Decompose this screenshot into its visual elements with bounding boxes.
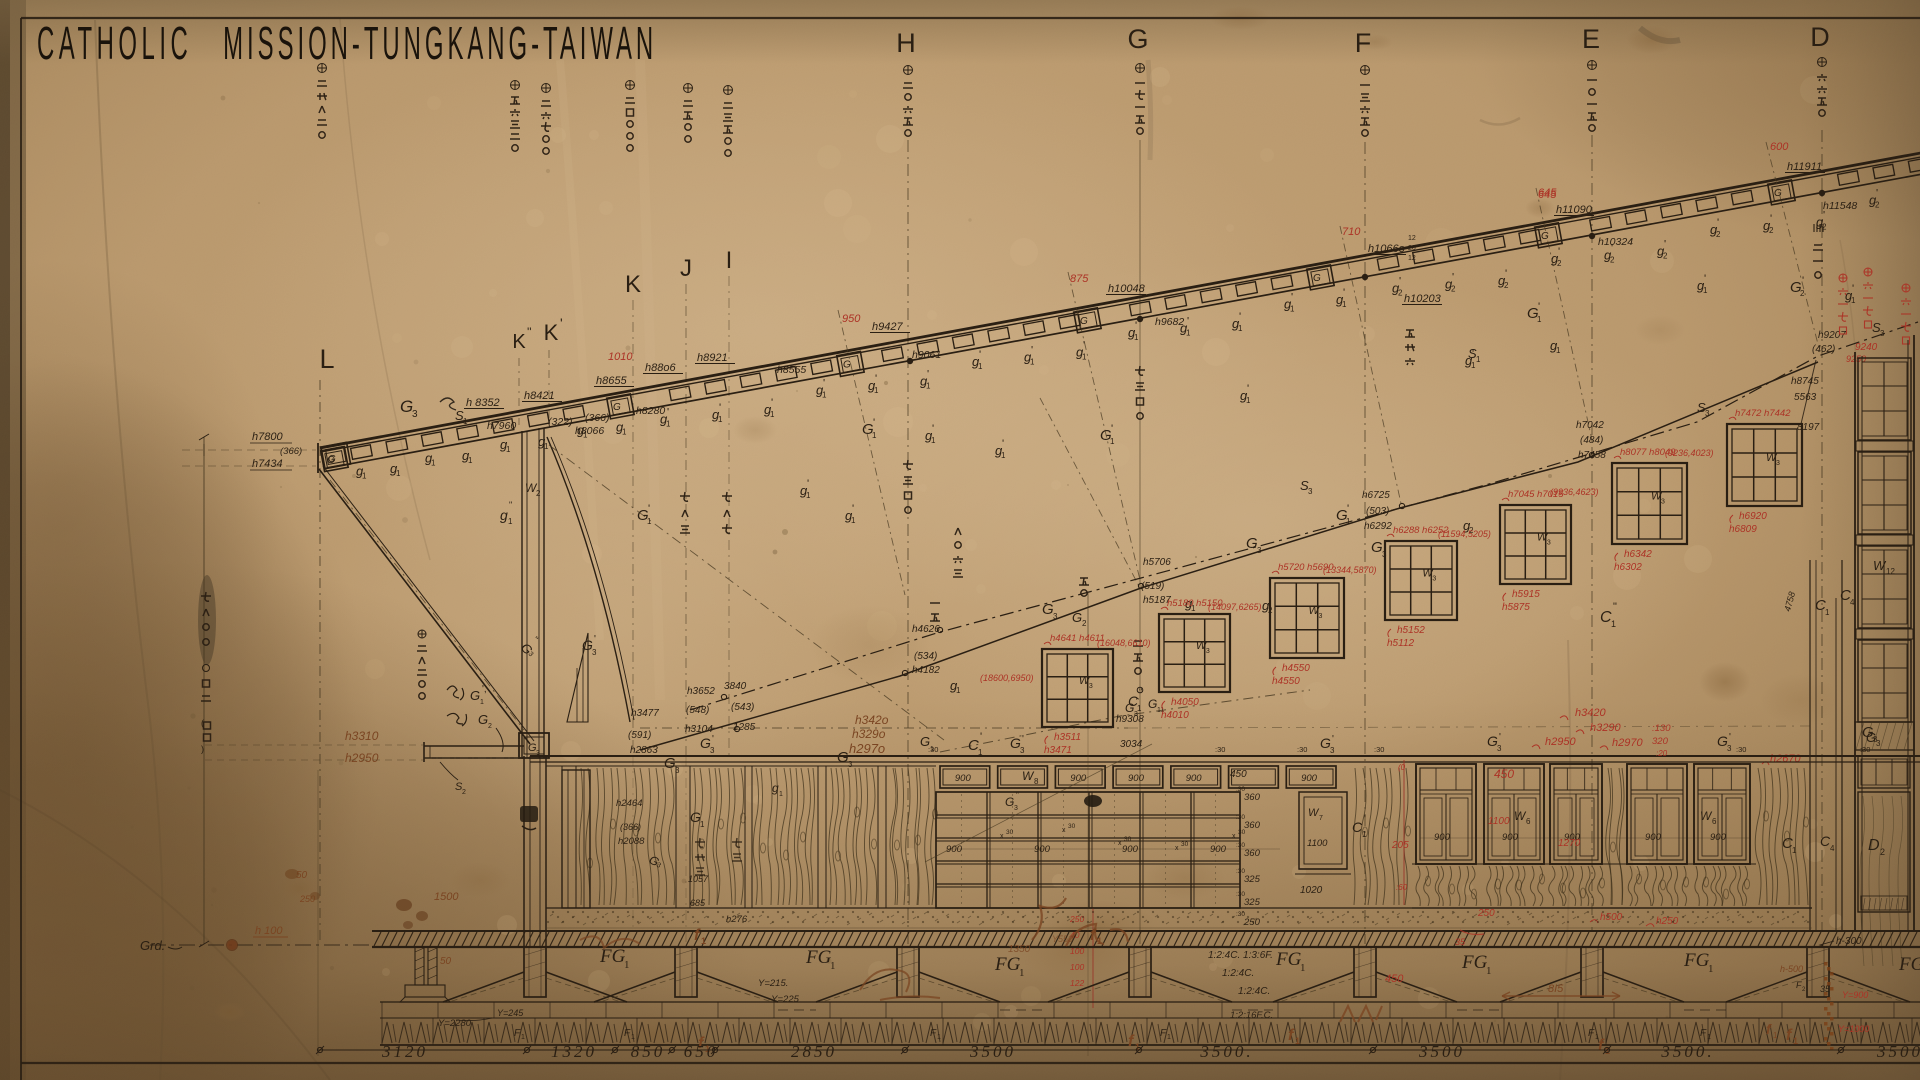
svg-text:W: W [1873,558,1887,573]
svg-text:1: 1 [647,517,652,526]
svg-text:4: 4 [1830,844,1835,853]
svg-text:30: 30 [1068,823,1076,830]
svg-text:250: 250 [1477,908,1495,919]
svg-text:685: 685 [690,898,706,908]
svg-text:G: G [470,688,480,703]
svg-text:3: 3 [710,746,715,755]
svg-text:1: 1 [1342,300,1347,309]
svg-text:': ' [979,349,981,361]
svg-text:': ' [1031,344,1033,356]
svg-text:F: F [1700,1028,1707,1039]
svg-text:D: D [1810,22,1830,52]
svg-text:1: 1 [872,431,877,440]
svg-text:2: 2 [536,489,541,498]
svg-text:710: 710 [1342,226,1361,238]
svg-text:g: g [500,507,508,523]
svg-text:900: 900 [1034,844,1051,855]
svg-text:450: 450 [1230,769,1247,780]
svg-text:3: 3 [1257,546,1262,555]
svg-text:1: 1 [468,456,473,465]
svg-text:G: G [843,360,851,371]
svg-text:1: 1 [1137,704,1142,713]
svg-text:1: 1 [1167,1034,1171,1041]
svg-text:h11090: h11090 [1556,204,1593,216]
svg-text:3: 3 [592,648,597,657]
svg-text:': ' [1364,814,1366,825]
svg-text:1:2:4C.: 1:2:4C. [1238,986,1270,997]
svg-text:G: G [1541,231,1549,242]
svg-text:': ' [1505,268,1507,280]
svg-text:h9308: h9308 [1116,714,1144,725]
svg-text:3: 3 [1089,683,1093,690]
svg-text:': ' [1729,732,1731,743]
svg-text:h10048: h10048 [1108,283,1146,295]
svg-text:G: G [1080,316,1088,327]
svg-text:h6809: h6809 [1729,524,1757,535]
svg-text:1: 1 [956,686,961,695]
svg-text:h4010: h4010 [1161,710,1189,721]
svg-text:325: 325 [1244,874,1261,885]
svg-text:3: 3 [1705,409,1710,418]
svg-text:1: 1 [1851,296,1856,305]
svg-text:(322): (322) [548,416,573,428]
svg-text:1: 1 [1792,846,1797,855]
svg-text:1: 1 [937,1034,941,1041]
svg-text:600: 600 [1770,141,1789,153]
svg-text:3034: 3034 [1120,739,1143,750]
svg-text:': ' [648,503,650,515]
svg-text:12: 12 [1408,255,1416,262]
svg-text:1: 1 [1300,962,1306,974]
svg-text:Y=1000: Y=1000 [1838,1024,1869,1034]
svg-text:': ' [1852,283,1854,295]
svg-text:': ' [719,402,721,414]
svg-text:': ' [1135,320,1137,332]
svg-text:3500: 3500 [1418,1042,1465,1061]
svg-text:h2464: h2464 [616,798,642,809]
svg-text:(591): (591) [628,730,651,741]
svg-text:h5152: h5152 [1397,625,1425,636]
svg-text:(366): (366) [620,822,641,832]
svg-text:-Y=225: -Y=225 [768,994,800,1005]
svg-text:1: 1 [931,436,936,445]
svg-text:(11594,5205): (11594,5205) [1438,529,1491,539]
svg-text:1270: 1270 [1558,838,1581,849]
svg-text::30: :30 [1236,842,1245,849]
svg-text:20: 20 [1408,245,1416,252]
svg-text:1010: 1010 [608,351,633,363]
svg-text:3: 3 [1206,648,1210,655]
svg-text:1: 1 [1773,1031,1778,1040]
svg-text:(9936,4623): (9936,4623) [1550,487,1599,497]
svg-text:8I5: 8I5 [1548,983,1564,995]
svg-text:h8921: h8921 [697,352,728,364]
svg-text:205: 205 [1391,840,1409,851]
svg-text:Y550: Y550 [1052,934,1073,944]
svg-text:900: 900 [1122,844,1139,855]
svg-text:1: 1 [508,517,513,526]
svg-text:1: 1 [1001,451,1006,460]
svg-text:1: 1 [1793,1036,1798,1046]
svg-text:h4050: h4050 [1171,697,1199,708]
svg-text:x: x [1062,827,1066,834]
svg-text:h1066o: h1066o [1368,243,1405,255]
svg-text:1: 1 [851,516,856,525]
svg-text:3: 3 [1661,498,1665,505]
svg-text:h10203: h10203 [1404,293,1442,305]
svg-text:645: 645 [1538,189,1557,201]
svg-text:x: x [1232,833,1236,840]
svg-text:2: 2 [1398,288,1403,297]
svg-text:Y=245: Y=245 [497,1008,524,1018]
svg-text:2: 2 [1504,281,1509,290]
svg-text:1: 1 [362,471,367,480]
svg-text:': ' [667,406,669,418]
svg-text:K: K [625,271,641,298]
svg-text:2850: 2850 [791,1042,837,1061]
svg-text:1: 1 [666,419,671,428]
svg-text:1:2:4C.: 1:2:4C. [1222,968,1254,979]
svg-text:': ' [1499,732,1501,743]
svg-text:3: 3 [1432,576,1436,583]
svg-text:1: 1 [521,1034,525,1041]
svg-text:650: 650 [684,1042,719,1061]
svg-text:1: 1 [622,427,627,436]
svg-text:h4626: h4626 [912,624,940,635]
svg-text:1: 1 [1486,965,1492,977]
svg-text:': ' [1452,272,1454,284]
svg-text:3: 3 [1020,746,1025,755]
svg-text:h6920: h6920 [1739,511,1767,522]
svg-text:3: 3 [1547,540,1551,547]
svg-text:h3104: h3104 [685,724,713,735]
svg-text:1: 1 [463,417,468,426]
svg-text:900: 900 [955,773,972,784]
svg-text:1: 1 [701,936,706,946]
svg-text:360: 360 [1244,848,1261,859]
svg-text:7: 7 [1319,815,1323,822]
svg-text:h 100: h 100 [255,925,283,937]
svg-text:(14097,6265): (14097,6265) [1208,602,1262,612]
svg-text:h4182: h4182 [912,665,940,676]
svg-text:(543): (543) [731,702,754,713]
svg-text:h7458: h7458 [1578,450,1606,461]
svg-text:h3477: h3477 [631,708,659,719]
svg-text:3: 3 [1014,805,1018,812]
svg-text:(519): (519) [1141,581,1164,592]
svg-text:2: 2 [1769,226,1774,235]
svg-text:1: 1 [874,386,879,395]
svg-text:1: 1 [396,469,401,478]
svg-text:G: G [1005,795,1014,809]
svg-text:3: 3 [1880,329,1885,338]
svg-text:',: ', [482,684,487,695]
svg-text:(503): (503) [1366,506,1389,517]
svg-text:F: F [624,1028,631,1039]
svg-text:(9236,4023): (9236,4023) [1665,448,1714,458]
svg-text:250: 250 [1243,917,1261,928]
svg-text:h7800: h7800 [252,431,283,443]
svg-text:h2950: h2950 [1545,736,1576,748]
svg-text:(548): (548) [686,705,709,716]
svg-text::60: :60 [1396,883,1408,892]
svg-text:h3420: h3420 [1575,707,1606,719]
svg-text:G: G [1148,697,1157,711]
svg-text:2: 2 [1610,255,1615,264]
svg-text:900: 900 [1502,832,1519,843]
svg-text::30: :30 [1236,891,1245,898]
svg-text:h8655: h8655 [596,375,627,387]
svg-text:): ) [201,744,204,754]
svg-text:F: F [1588,1028,1595,1039]
svg-text:FG: FG [805,947,832,968]
svg-text:2: 2 [1557,259,1562,268]
svg-text:h 8352: h 8352 [466,397,500,409]
svg-text:1: 1 [806,491,811,500]
svg-text:': ' [1876,188,1878,200]
svg-text:G: G [1866,730,1876,745]
svg-text:2: 2 [1875,201,1880,210]
svg-text:12: 12 [1886,567,1895,576]
svg-text:L: L [319,344,334,374]
svg-text::30: :30 [1236,814,1245,821]
svg-text:h9427: h9427 [872,321,903,333]
svg-text:1320: 1320 [551,1042,597,1061]
svg-text:Y=215.: Y=215. [758,978,788,989]
svg-text:': ' [980,731,982,743]
svg-text:1: 1 [779,791,783,798]
svg-text::30: :30 [928,745,938,754]
svg-text::30: :30 [1297,745,1307,754]
svg-text:': ' [823,378,825,390]
svg-text:G: G [613,402,621,413]
svg-text:h3652: h3652 [687,686,715,697]
svg-text:FG: FG [1683,950,1710,971]
svg-text:3500.: 3500. [1660,1042,1714,1061]
svg-text:E: E [1582,24,1600,54]
svg-text:h297o: h297o [849,741,885,756]
svg-text:': ' [875,373,877,385]
svg-text:900: 900 [1434,832,1451,843]
svg-text:1: 1 [1030,357,1035,366]
svg-text:3120: 3120 [381,1042,428,1061]
svg-text:1: 1 [1290,304,1295,313]
svg-text:1: 1 [770,410,775,419]
svg-text:FG: FG [1275,949,1302,970]
svg-text:h342o: h342o [855,713,889,727]
svg-text:': ' [1704,273,1706,285]
svg-text:1: 1 [822,391,827,400]
svg-text:1: 1 [926,381,931,390]
svg-text:900: 900 [1645,832,1662,843]
svg-text:F: F [1160,1028,1167,1039]
svg-text:30: 30 [1124,836,1132,843]
svg-text:'': '' [527,325,532,339]
svg-text:': ' [1823,209,1825,221]
svg-text:': ' [1717,217,1719,229]
svg-text::30: :30 [1736,745,1746,754]
svg-text:': ' [594,634,596,645]
svg-text:': ' [712,734,714,745]
svg-text:2: 2 [488,723,492,730]
svg-text:3: 3 [1330,746,1335,755]
svg-text:': ' [1022,734,1024,745]
svg-text:900: 900 [946,844,963,855]
svg-text:(16048,6610): (16048,6610) [1097,638,1151,648]
svg-text:3840: 3840 [724,681,747,692]
svg-text:Grd.: Grd. [140,938,165,953]
svg-text:3500: 3500 [1876,1042,1920,1061]
svg-text:': ' [1111,423,1113,435]
svg-text:30: 30 [1181,841,1189,848]
svg-text:1: 1 [830,960,836,972]
svg-text:3500: 3500 [969,1042,1016,1061]
svg-text:1: 1 [1019,967,1025,979]
svg-text:CATHOLIC: CATHOLIC [37,18,192,69]
svg-text:h-500: h-500 [1780,964,1803,974]
svg-text:9240: 9240 [1855,342,1878,353]
svg-text:F: F [1355,28,1372,58]
svg-text:h5875: h5875 [1502,602,1530,613]
svg-text::30: :30 [1236,868,1245,875]
svg-text:900: 900 [1186,773,1203,784]
svg-text:900: 900 [1301,773,1318,784]
svg-text:1: 1 [1708,963,1714,975]
svg-text:1500: 1500 [434,891,459,903]
svg-text:3: 3 [1776,460,1780,467]
svg-text:h9207: h9207 [1818,330,1846,341]
svg-text:3: 3 [412,409,418,420]
svg-text:(534): (534) [914,651,937,662]
svg-text:3: 3 [1497,744,1502,753]
svg-text:1: 1 [631,1034,635,1041]
svg-text:h7960: h7960 [487,420,516,432]
svg-text:h7434: h7434 [252,458,283,470]
svg-text:325: 325 [1244,897,1261,908]
svg-text:h2863: h2863 [630,745,658,756]
svg-text::30: :30 [1860,745,1870,754]
svg-text:F: F [930,1028,937,1039]
svg-text:FG: FG [599,946,626,967]
svg-text:1: 1 [718,415,723,424]
svg-text:35: 35 [1455,937,1466,947]
svg-text:': ' [1343,287,1345,299]
svg-text:Y=900: Y=900 [1842,990,1868,1000]
svg-text:1: 1 [1186,329,1191,338]
svg-text:9250: 9250 [1846,354,1866,364]
svg-text:6: 6 [1526,817,1531,826]
svg-text:320: 320 [1652,736,1669,747]
svg-text:G: G [328,454,336,465]
svg-text:h2670: h2670 [1770,753,1801,765]
svg-text:': ' [1002,438,1004,450]
svg-text:3: 3 [1319,613,1323,620]
svg-text:': ' [1558,246,1560,258]
svg-text:(366): (366) [280,446,302,457]
svg-text:1: 1 [1825,608,1830,617]
svg-text:FG: FG [1898,954,1920,975]
svg-text:': ' [1538,301,1540,313]
svg-text:G: G [478,712,488,727]
svg-text:h3310: h3310 [345,729,379,743]
svg-text::30: :30 [1215,745,1225,754]
svg-text:2: 2 [1663,252,1668,261]
svg-text:x: x [1175,845,1179,852]
svg-text:h8745: h8745 [1791,376,1819,387]
svg-text:2: 2 [1880,847,1885,857]
svg-text:8: 8 [1034,777,1039,786]
svg-text:': ' [932,423,934,435]
svg-text:h6292: h6292 [1364,521,1392,532]
svg-text:h88o6: h88o6 [645,362,676,374]
svg-text:1: 1 [480,699,484,706]
svg-text:1: 1 [624,959,630,971]
svg-text:1:2:4C. 1:3:6F.: 1:2:4C. 1:3:6F. [1208,950,1273,961]
svg-text:h8421: h8421 [524,390,555,402]
svg-text:K: K [512,331,526,353]
svg-text:h7472 h7442: h7472 h7442 [1735,408,1791,419]
svg-text:50: 50 [440,956,452,967]
svg-text:': ' [1611,242,1613,254]
svg-text:': ' [1247,383,1249,395]
svg-text:": " [1016,791,1019,800]
svg-text:K: K [544,320,559,345]
svg-text:100: 100 [1070,962,1084,972]
svg-text:h276: h276 [726,914,748,925]
svg-text:1:2:16F.C.: 1:2:16F.C. [1230,1010,1273,1021]
svg-text:(484): (484) [1580,435,1603,446]
svg-text:1: 1 [583,431,588,440]
svg-text:1: 1 [506,445,511,454]
svg-text:5563: 5563 [1794,392,1817,403]
svg-text:360: 360 [1244,820,1261,831]
svg-text:": " [1613,601,1617,613]
svg-text:h11548: h11548 [1823,200,1857,212]
svg-text:D: D [1868,837,1880,854]
svg-text:x: x [1000,833,1004,840]
svg-text:J: J [680,255,692,282]
svg-text:2: 2 [462,789,466,796]
svg-text:900: 900 [1710,832,1727,843]
svg-text:(462): (462) [1812,344,1835,355]
svg-text:h4550: h4550 [1282,663,1310,674]
svg-text::30: :30 [1236,786,1245,793]
svg-text:h3290: h3290 [1590,722,1621,734]
svg-text:2: 2 [1451,285,1456,294]
svg-text:(366): (366) [585,412,610,424]
svg-text:h3511: h3511 [1054,732,1081,743]
svg-text:': ' [1187,316,1189,328]
svg-text:122: 122 [1070,978,1084,988]
svg-text:1020: 1020 [1300,885,1323,896]
svg-text:G: G [1072,610,1082,625]
svg-text:2: 2 [1716,230,1721,239]
svg-text:1100: 1100 [1488,816,1510,827]
svg-text:250: 250 [1069,914,1084,924]
svg-text:h5915: h5915 [1512,589,1540,600]
svg-text:1: 1 [1134,333,1139,342]
svg-text:6: 6 [1712,817,1717,826]
svg-text:G: G [1313,273,1321,284]
svg-text:h7042: h7042 [1576,420,1604,431]
svg-text:Y=2280: Y=2280 [438,1018,472,1029]
svg-text:': ' [873,417,875,429]
svg-text:1350: 1350 [1008,944,1031,955]
svg-text:": " [509,500,512,510]
svg-text:FG: FG [1461,952,1488,973]
svg-text:1: 1 [1246,396,1251,405]
svg-text:360: 360 [1244,792,1261,803]
